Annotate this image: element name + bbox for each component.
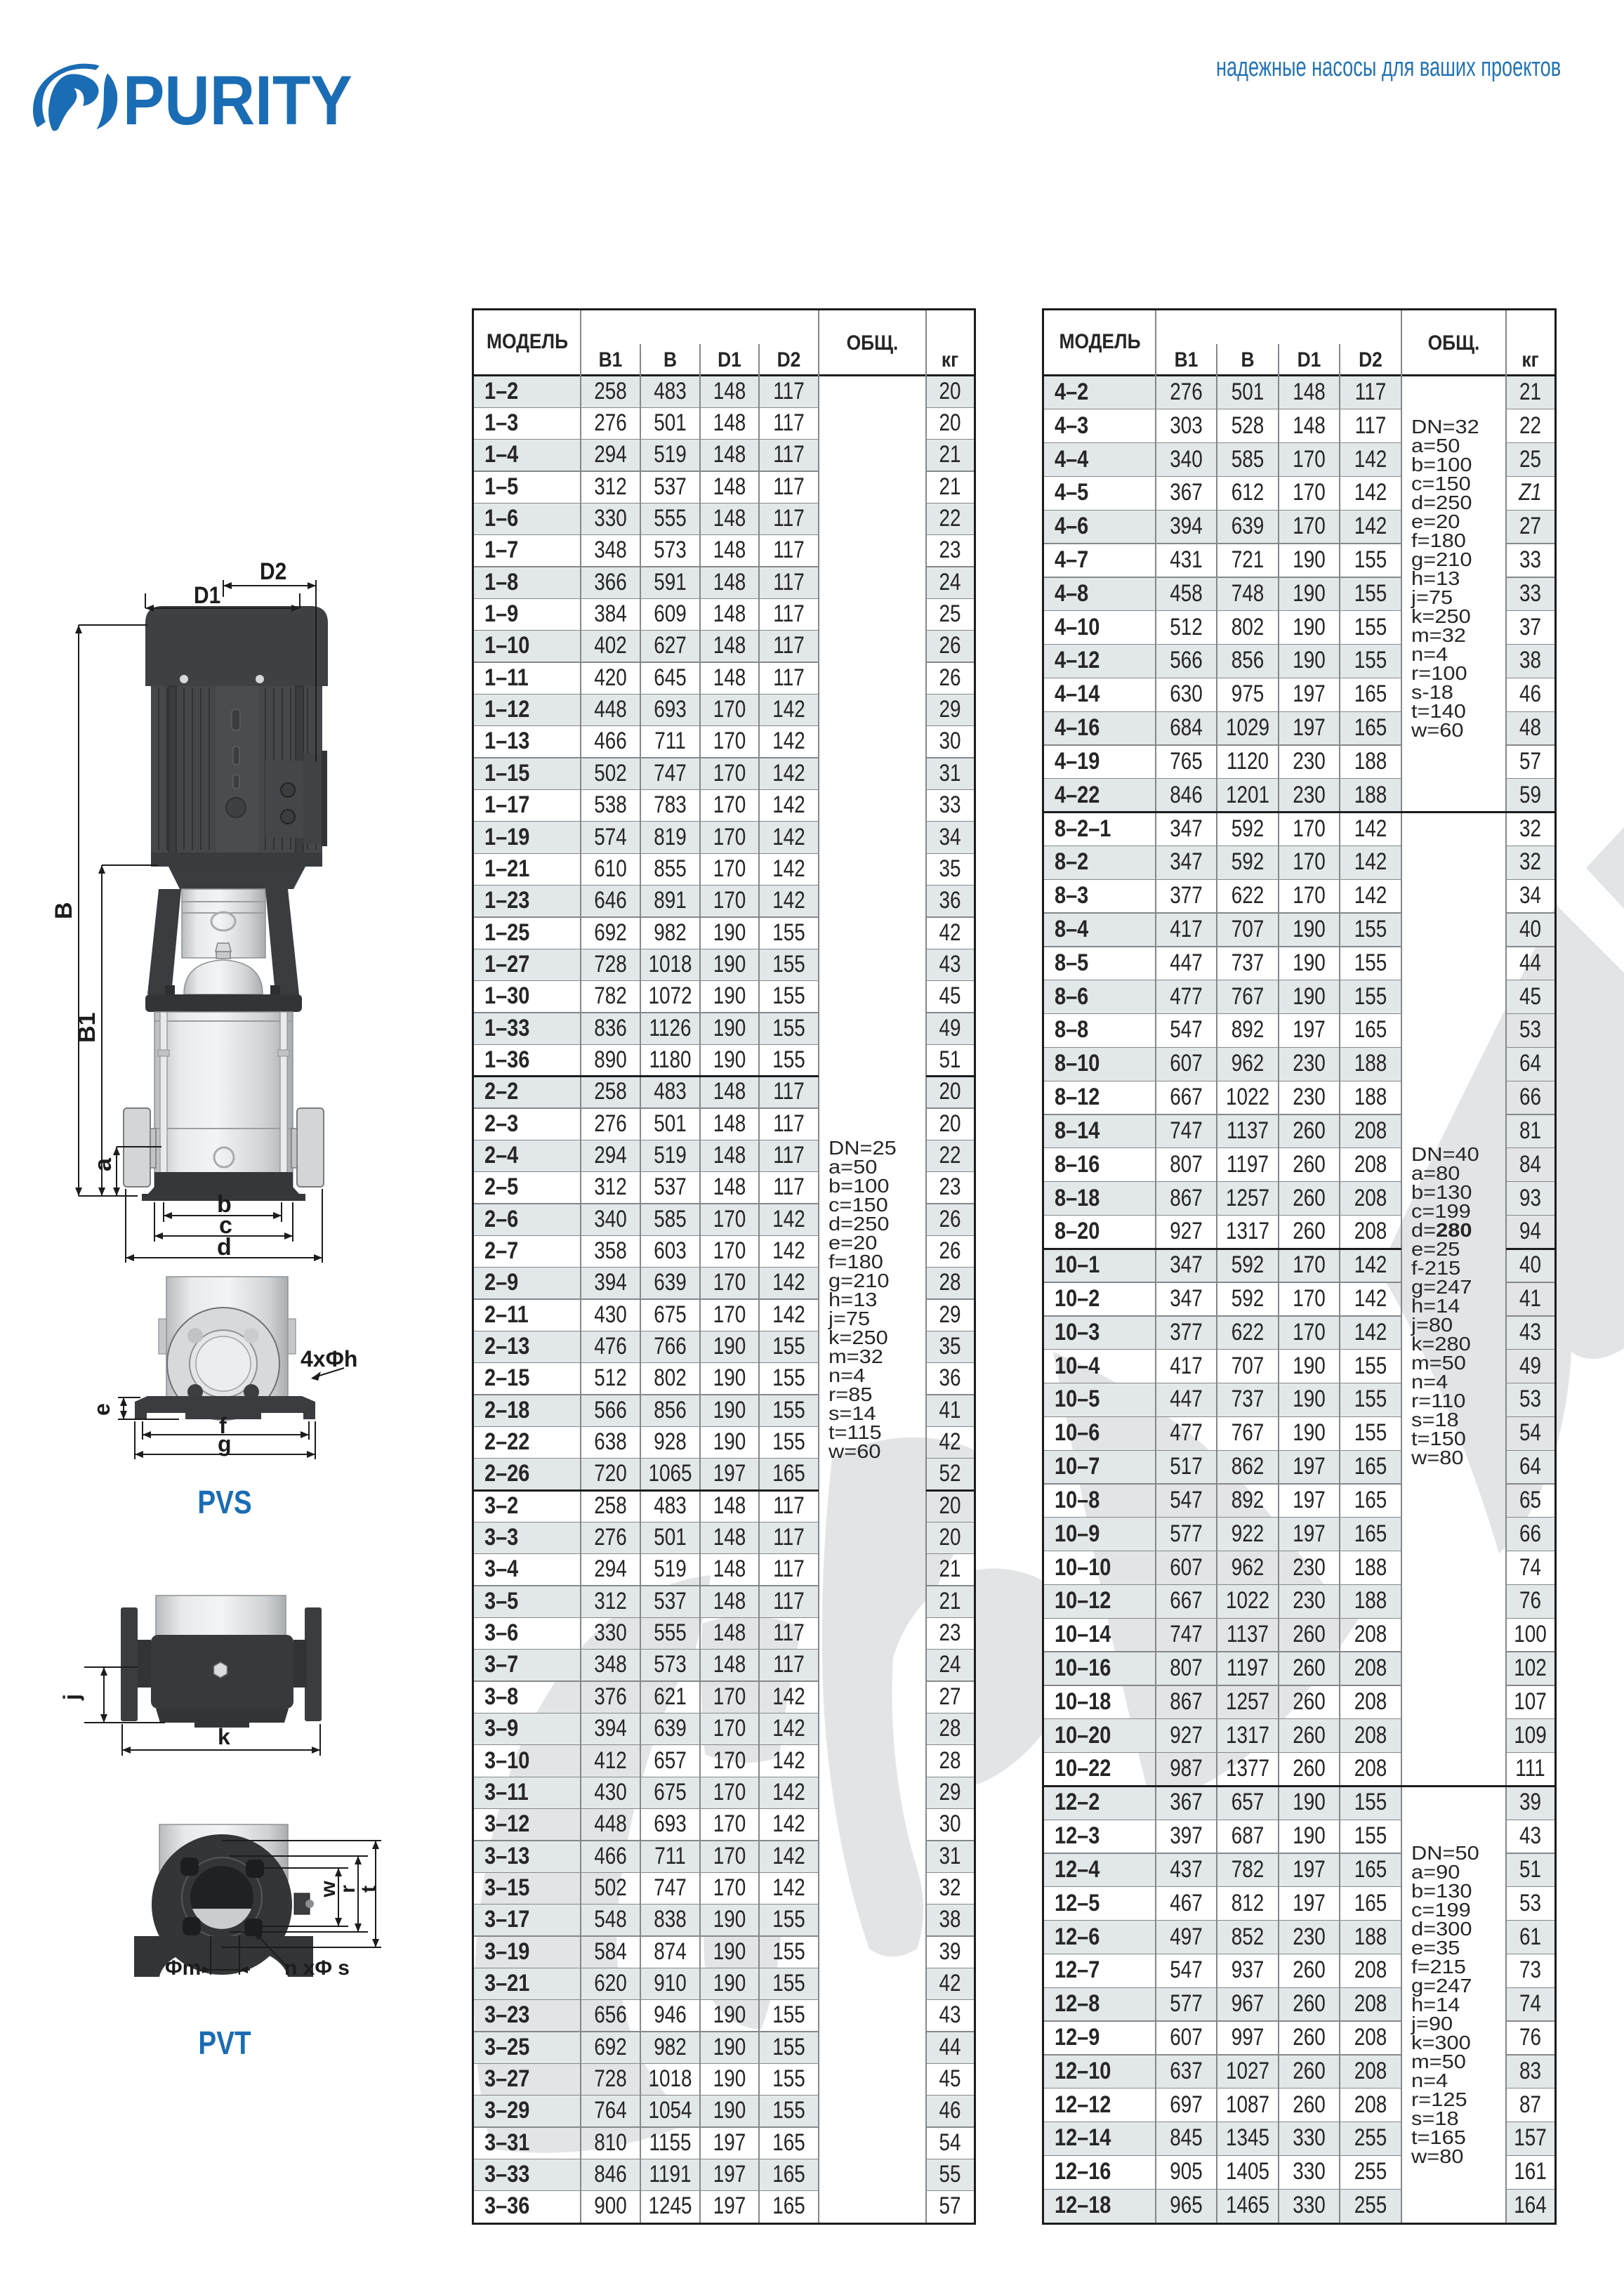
svg-text:r: r [336, 1885, 359, 1893]
svg-text:n xΦ s: n xΦ s [284, 1956, 350, 1980]
svg-text:e: e [89, 1403, 114, 1416]
svg-text:D1: D1 [194, 581, 220, 608]
svg-text:d: d [217, 1234, 232, 1261]
svg-text:g: g [218, 1431, 232, 1456]
svg-text:B1: B1 [74, 1013, 100, 1043]
svg-text:Φm: Φm [165, 1956, 201, 1980]
svg-text:a: a [90, 1157, 117, 1171]
svg-text:t: t [357, 1886, 381, 1893]
svg-text:D2: D2 [260, 558, 286, 584]
svg-text:j: j [59, 1694, 84, 1701]
svg-text:B: B [51, 902, 77, 919]
svg-text:k: k [218, 1724, 230, 1749]
svg-text:4xΦh: 4xΦh [301, 1346, 357, 1371]
